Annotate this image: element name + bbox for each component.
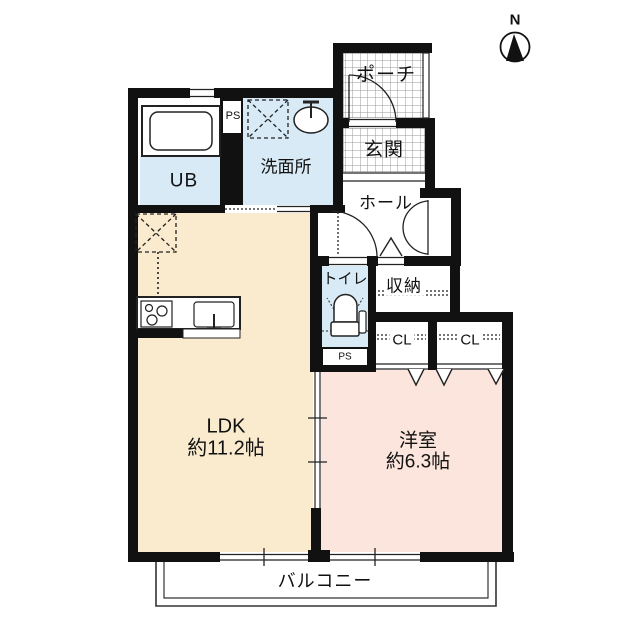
label-bedroom: 洋室 約6.3帖 [386, 431, 450, 474]
label-balcony: バルコニー [278, 571, 373, 591]
north-compass-icon [501, 33, 530, 62]
storage-door-mark [380, 238, 402, 256]
ldk-floor [138, 213, 313, 552]
kitchen-counter [137, 297, 240, 338]
stove-icon [141, 301, 172, 327]
kitchen-sink-icon [194, 302, 234, 329]
label-pipe-space-top: PS [226, 110, 241, 122]
toilet-door-opening [329, 256, 367, 266]
hall-door-arc [331, 211, 377, 257]
label-unit-bath: UB [170, 170, 198, 191]
porch-railing [423, 53, 429, 118]
ldk-area: 約11.2帖 [187, 438, 264, 460]
washroom-opening-dotted [225, 205, 277, 213]
label-porch: ポーチ [356, 64, 416, 85]
ldk-name: LDK [187, 416, 264, 438]
label-toilet: トイレ [322, 272, 367, 289]
vent-window [190, 88, 214, 98]
label-ldk: LDK 約11.2帖 [187, 416, 264, 461]
label-storage: 収納 [384, 276, 424, 295]
label-pipe-space-bottom: PS [338, 351, 351, 362]
label-closet-1: CL [389, 333, 414, 350]
label-entrance: 玄関 [364, 139, 404, 160]
bedroom-name: 洋室 [386, 431, 450, 452]
entrance-step [343, 172, 425, 182]
washroom-door-opening [277, 205, 310, 213]
label-washroom: 洗面所 [261, 157, 312, 176]
label-hall: ホール [359, 193, 413, 212]
label-closet-2: CL [457, 333, 482, 350]
floor-plan: N ポーチ 玄関 洗面所 UB PS ホール トイレ 収納 CL CL PS L… [0, 0, 640, 639]
north-label: N [510, 13, 521, 30]
storage-door-opening [378, 256, 404, 266]
bathtub-icon [142, 106, 220, 156]
bedroom-area: 約6.3帖 [386, 452, 450, 473]
front-door-opening [349, 118, 396, 128]
floor-plan-drawing [0, 0, 640, 639]
